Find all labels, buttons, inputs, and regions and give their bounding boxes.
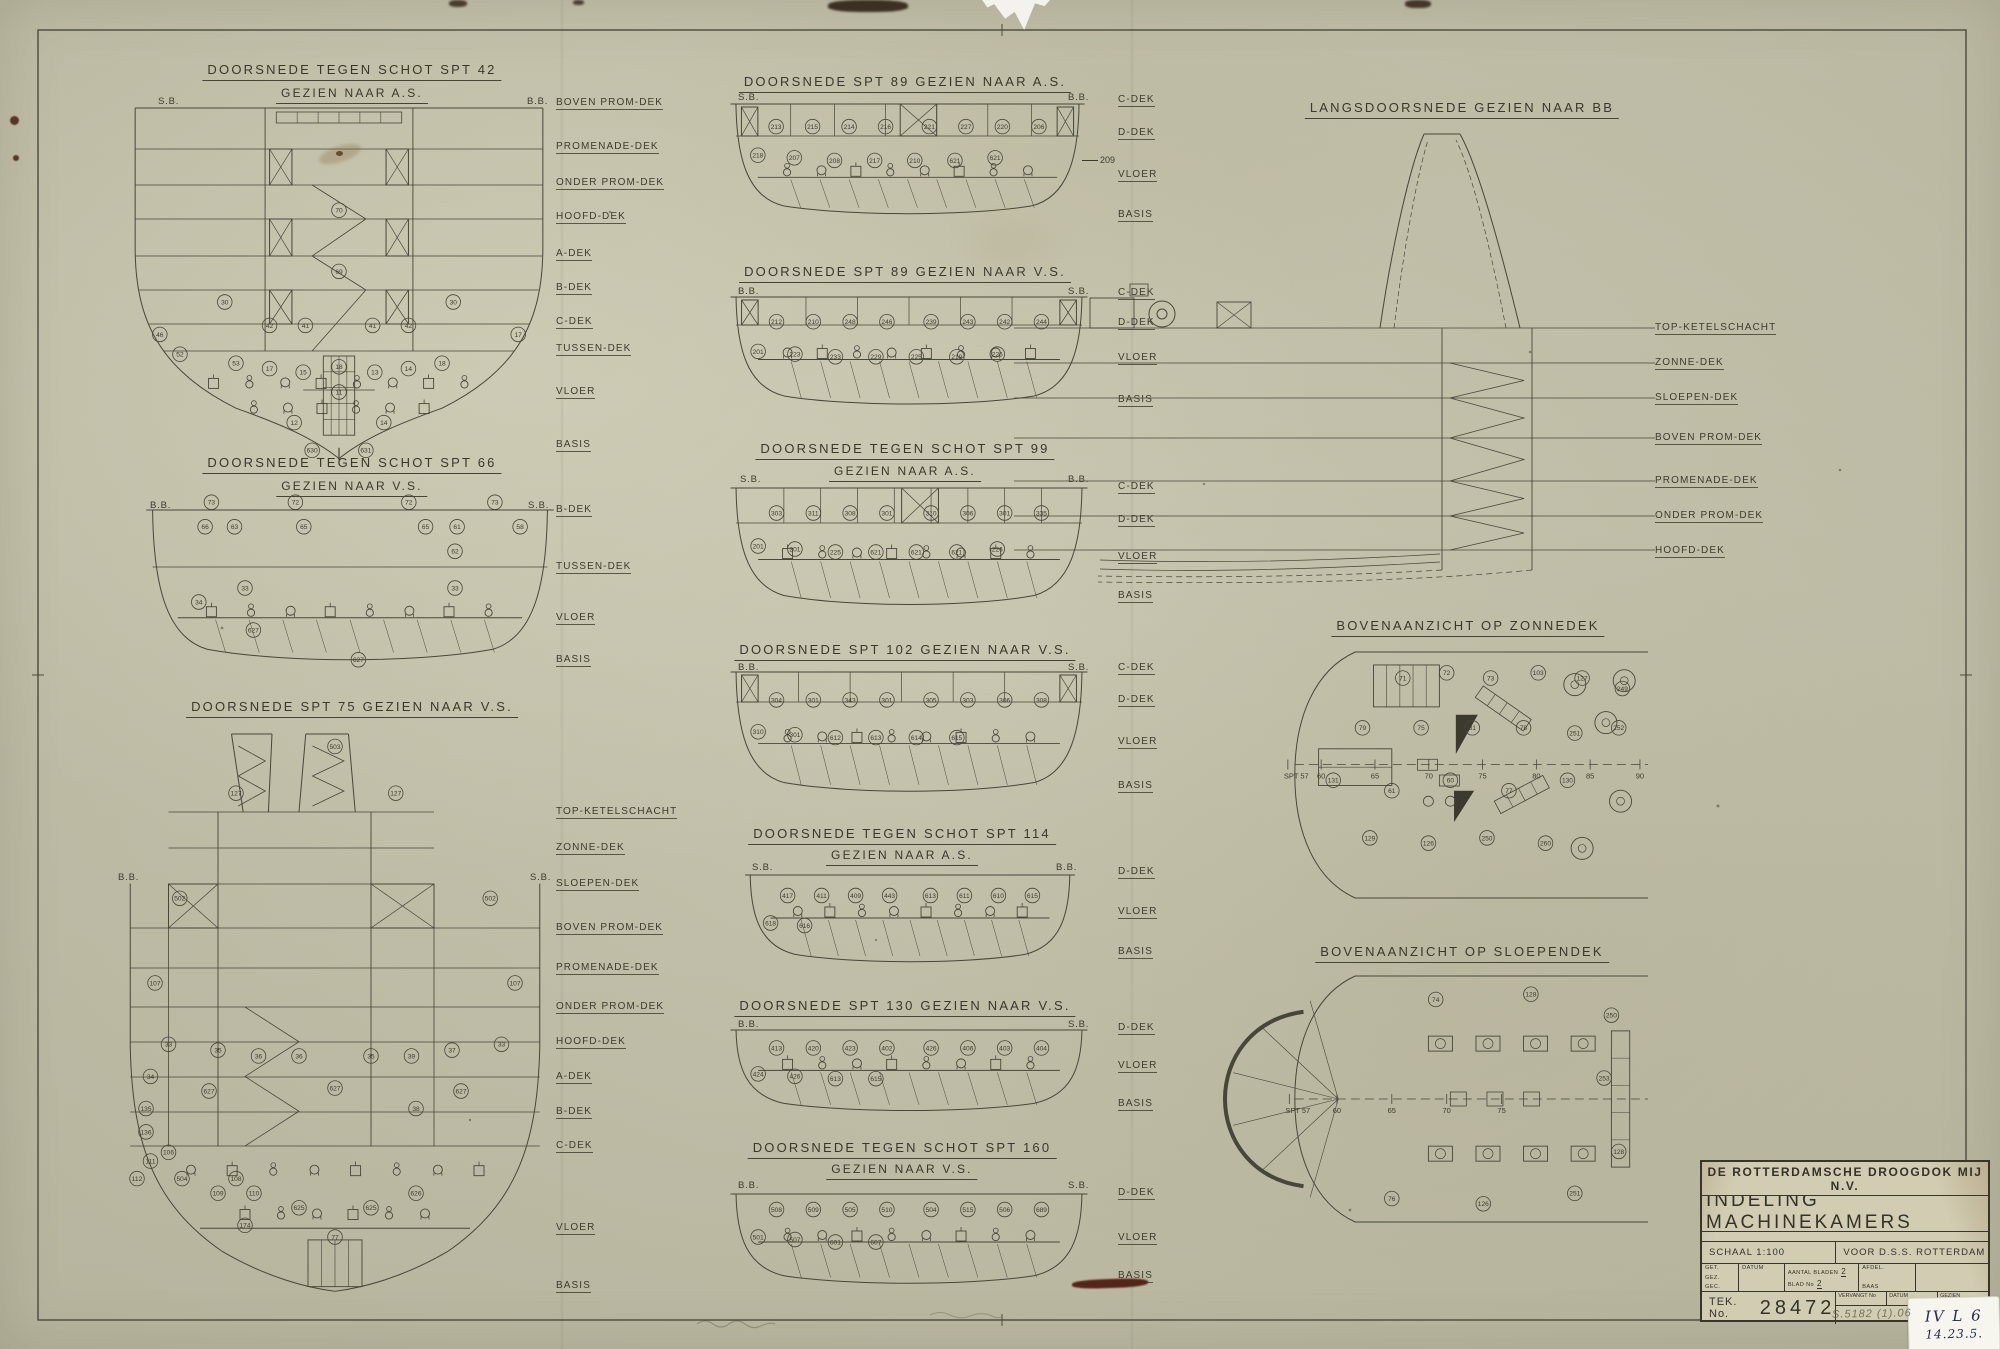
drawing-sheet: DOORSNEDE TEGEN SCHOT SPT 42GEZIEN NAAR … xyxy=(0,0,2000,1349)
svg-text:62: 62 xyxy=(451,549,459,556)
callout: 233 xyxy=(828,350,843,365)
svg-text:30: 30 xyxy=(450,299,458,306)
callout: 66 xyxy=(198,519,213,534)
svg-text:201: 201 xyxy=(753,543,764,550)
callout: 106 xyxy=(161,1145,176,1160)
svg-text:61: 61 xyxy=(1388,788,1396,795)
svg-text:613: 613 xyxy=(870,735,881,742)
callout: 212 xyxy=(769,314,784,329)
svg-text:250: 250 xyxy=(1481,835,1492,842)
empty-cell xyxy=(1916,1264,1988,1291)
svg-text:107: 107 xyxy=(509,980,520,987)
callout: 417 xyxy=(780,888,795,903)
svg-text:127: 127 xyxy=(1577,675,1588,682)
callout: 504 xyxy=(175,1171,190,1186)
callout: 404 xyxy=(1034,1041,1049,1056)
svg-text:611: 611 xyxy=(959,893,970,900)
svg-text:38: 38 xyxy=(412,1106,420,1113)
section-spt130-deck-label: D-DEK xyxy=(1118,1022,1155,1035)
svg-text:404: 404 xyxy=(1036,1045,1047,1052)
frame-number: SPT 57 xyxy=(1284,772,1309,781)
svg-text:413: 413 xyxy=(771,1045,782,1052)
sheets-cell: AANTAL BLADEN2 BLAD No2 xyxy=(1785,1264,1859,1291)
svg-text:65: 65 xyxy=(422,524,430,531)
svg-text:220: 220 xyxy=(997,124,1008,131)
callout: 36 xyxy=(292,1049,307,1064)
callout: 225 xyxy=(828,545,843,560)
callout: 226 xyxy=(990,542,1005,557)
callout: 627 xyxy=(328,1081,343,1096)
callout: 402 xyxy=(880,1041,895,1056)
tek-cell: TEK. No. 28472 xyxy=(1702,1292,1836,1324)
callout: 411 xyxy=(814,888,829,903)
section-spt130-deck-label: BASIS xyxy=(1118,1098,1153,1111)
svg-text:212: 212 xyxy=(771,319,782,326)
callout: 33 xyxy=(448,581,463,596)
langsdoorsnede-title: LANGSDOORSNEDE GEZIEN NAAR BB xyxy=(1305,100,1619,119)
client-label: VOOR D.S.S. ROTTERDAM xyxy=(1836,1242,1988,1263)
svg-text:128: 128 xyxy=(1525,992,1536,999)
svg-text:210: 210 xyxy=(808,319,819,326)
svg-text:60: 60 xyxy=(1447,778,1455,785)
svg-text:420: 420 xyxy=(808,1045,819,1052)
callout: 301 xyxy=(880,693,895,708)
svg-text:208: 208 xyxy=(829,158,840,165)
field-afdel: AFDEL. xyxy=(1862,1265,1912,1271)
section-spt130-title: DOORSNEDE SPT 130 GEZIEN NAAR V.S. xyxy=(734,998,1075,1017)
svg-text:616: 616 xyxy=(799,923,810,930)
callout: 243 xyxy=(961,314,976,329)
svg-text:39: 39 xyxy=(408,1053,416,1060)
aantal-value: 2 xyxy=(1841,1267,1846,1277)
svg-text:627: 627 xyxy=(353,657,364,664)
svg-text:128: 128 xyxy=(1613,1149,1624,1156)
callout: 409 xyxy=(848,888,863,903)
svg-text:301: 301 xyxy=(789,732,800,739)
svg-text:126: 126 xyxy=(1478,1201,1489,1208)
callout: 301 xyxy=(880,506,895,521)
svg-text:65: 65 xyxy=(300,524,308,531)
svg-text:626: 626 xyxy=(410,1191,421,1198)
langsdoorsnede-deck-label: SLOEPEN-DEK xyxy=(1655,392,1738,405)
svg-text:443: 443 xyxy=(884,893,895,900)
section-spt114-deck-label: BASIS xyxy=(1118,946,1153,959)
callout: 72 xyxy=(1439,666,1454,681)
section-spt66-deck-label: VLOER xyxy=(556,612,595,625)
svg-text:612: 612 xyxy=(830,735,841,742)
svg-text:61: 61 xyxy=(453,524,461,531)
frame-number: 75 xyxy=(1478,772,1486,781)
section-spt102-title: DOORSNEDE SPT 102 GEZIEN NAAR V.S. xyxy=(734,642,1075,661)
svg-text:73: 73 xyxy=(208,500,216,507)
callout: 76 xyxy=(1385,1191,1400,1206)
svg-text:36: 36 xyxy=(255,1053,263,1060)
svg-text:301: 301 xyxy=(881,510,892,517)
svg-text:130: 130 xyxy=(1562,778,1573,785)
tek-number: 28472 xyxy=(1760,1297,1836,1320)
callout: 304 xyxy=(769,693,784,708)
section-spt160-title: DOORSNEDE TEGEN SCHOT SPT 160 xyxy=(748,1140,1057,1159)
callout: 210 xyxy=(908,153,923,168)
svg-text:35: 35 xyxy=(367,1053,375,1060)
callout: 30 xyxy=(446,295,461,310)
callout: 506 xyxy=(997,1202,1012,1217)
svg-text:621: 621 xyxy=(911,549,922,556)
rust-spot xyxy=(10,116,19,125)
callout: 303 xyxy=(961,693,976,708)
callout: 509 xyxy=(806,1202,821,1217)
callout: 65 xyxy=(418,519,433,534)
section-spt66-deck-label: BASIS xyxy=(556,654,591,667)
section-spt42-deck-label: PROMENADE-DEK xyxy=(556,141,659,154)
callout: 15 xyxy=(296,365,311,380)
callout: 208 xyxy=(827,153,842,168)
callout: 39 xyxy=(404,1049,419,1064)
callout: 248 xyxy=(843,314,858,329)
svg-text:621: 621 xyxy=(990,155,1001,162)
svg-text:35: 35 xyxy=(214,1048,222,1055)
section-spt75-deck-label: ZONNE-DEK xyxy=(556,842,625,855)
svg-text:106: 106 xyxy=(163,1150,174,1157)
section-spt99-title: DOORSNEDE TEGEN SCHOT SPT 99 xyxy=(755,441,1054,460)
svg-text:77: 77 xyxy=(1505,788,1513,795)
callout: 627 xyxy=(202,1084,217,1099)
callout: 242 xyxy=(997,314,1012,329)
svg-text:77: 77 xyxy=(331,1234,339,1241)
callout: 503 xyxy=(328,739,343,754)
svg-text:215: 215 xyxy=(807,124,818,131)
callout: 72 xyxy=(288,495,303,510)
callout: 426 xyxy=(788,1069,803,1084)
callout: 74 xyxy=(1428,992,1443,1007)
field-blad-no: BLAD No xyxy=(1788,1282,1814,1288)
callout: 301 xyxy=(806,693,821,708)
svg-text:343: 343 xyxy=(845,697,856,704)
svg-text:627: 627 xyxy=(203,1088,214,1095)
ink-smudge xyxy=(573,0,584,5)
section-spt42-deck-label: HOOFD-DEK xyxy=(556,211,626,224)
callout: 252 xyxy=(1611,721,1626,736)
svg-text:223: 223 xyxy=(789,352,800,359)
svg-text:216: 216 xyxy=(880,124,891,131)
callout: 627 xyxy=(246,623,261,638)
callout: 246 xyxy=(880,314,895,329)
svg-text:58: 58 xyxy=(516,524,524,531)
callout: 621 xyxy=(948,153,963,168)
callout: 129 xyxy=(1363,831,1378,846)
callout: 308 xyxy=(843,506,858,521)
callout: 627 xyxy=(351,652,366,667)
langsdoorsnede-drawing xyxy=(1012,126,1657,574)
section-spt75-deck-label: PROMENADE-DEK xyxy=(556,962,659,975)
section-spt42-title: DOORSNEDE TEGEN SCHOT SPT 42 xyxy=(202,62,501,81)
svg-text:37: 37 xyxy=(448,1048,456,1055)
callout: 18 xyxy=(435,356,450,371)
callout: 41 xyxy=(298,318,313,333)
svg-text:11: 11 xyxy=(336,389,343,396)
svg-text:251: 251 xyxy=(1569,730,1580,737)
callout: 308 xyxy=(1034,693,1049,708)
svg-text:505: 505 xyxy=(845,1207,856,1214)
title-block-spacer xyxy=(1702,1232,1988,1242)
svg-text:504: 504 xyxy=(176,1176,187,1183)
callout: 73 xyxy=(204,495,219,510)
callout: 627 xyxy=(454,1084,469,1099)
callout: 63 xyxy=(227,519,242,534)
svg-text:502: 502 xyxy=(174,896,185,903)
svg-text:201: 201 xyxy=(753,349,764,356)
callout: 215 xyxy=(805,119,820,134)
bovenaanzicht-sloependek-title: BOVENAANZICHT OP SLOEPENDEK xyxy=(1315,944,1609,963)
callout: 615 xyxy=(869,1071,884,1086)
section-spt102-drawing: 3043013433013053033063083103016126136146… xyxy=(725,668,1093,813)
callout: 34 xyxy=(192,595,207,610)
callout: 621 xyxy=(988,151,1003,166)
section-spt75-deck-label: BASIS xyxy=(556,1280,591,1293)
section-spt114-deck-label: VLOER xyxy=(1118,906,1157,919)
ink-smudge xyxy=(449,0,467,7)
svg-text:502: 502 xyxy=(485,896,496,903)
svg-text:33: 33 xyxy=(241,585,249,592)
section-spt89-as-deck-label: C-DEK xyxy=(1118,94,1155,107)
svg-text:627: 627 xyxy=(329,1085,340,1092)
svg-text:306: 306 xyxy=(962,510,973,517)
svg-text:301: 301 xyxy=(999,510,1010,517)
frame-number: 70 xyxy=(1443,1106,1451,1115)
section-spt75-deck-label: SLOEPEN-DEK xyxy=(556,878,639,891)
callout: 420 xyxy=(806,1041,821,1056)
callout: 505 xyxy=(843,1202,858,1217)
callout: 65 xyxy=(297,519,312,534)
svg-text:14: 14 xyxy=(380,420,388,427)
section-spt75-deck-label: C-DEK xyxy=(556,1140,593,1153)
callout: 249 xyxy=(1615,681,1630,696)
svg-text:630: 630 xyxy=(307,448,318,455)
langsdoorsnede-deck-label: TOP-KETELSCHACHT xyxy=(1655,322,1776,335)
section-spt114-subtitle: GEZIEN NAAR A.S. xyxy=(826,848,978,866)
svg-text:79: 79 xyxy=(1359,725,1367,732)
svg-text:426: 426 xyxy=(926,1045,937,1052)
svg-text:618: 618 xyxy=(765,920,776,927)
svg-text:46: 46 xyxy=(156,332,164,339)
callout: 621 xyxy=(909,545,924,560)
svg-text:613: 613 xyxy=(925,893,936,900)
callout: 219 xyxy=(950,350,965,365)
svg-text:214: 214 xyxy=(844,124,855,131)
svg-text:76: 76 xyxy=(1388,1196,1396,1203)
section-spt89-as-title: DOORSNEDE SPT 89 GEZIEN NAAR A.S. xyxy=(739,74,1071,93)
section-spt102-deck-label: VLOER xyxy=(1118,736,1157,749)
svg-text:625: 625 xyxy=(293,1205,304,1212)
callout: 616 xyxy=(797,918,812,933)
svg-text:75: 75 xyxy=(1417,725,1425,732)
svg-text:103: 103 xyxy=(1533,670,1544,677)
callout: 128 xyxy=(1611,1144,1626,1159)
sticker-number: 14.23.5. xyxy=(1925,1326,1983,1341)
callout: 303 xyxy=(769,506,784,521)
svg-text:504: 504 xyxy=(926,1207,937,1214)
callout: 508 xyxy=(769,1202,784,1217)
svg-text:227: 227 xyxy=(960,124,971,131)
section-spt102-deck-label: D-DEK xyxy=(1118,694,1155,707)
callout: 614 xyxy=(909,730,924,745)
callout: 601 xyxy=(828,1235,843,1250)
svg-text:107: 107 xyxy=(149,980,160,987)
callout: 17 xyxy=(511,327,526,342)
frame-number: 70 xyxy=(1425,772,1433,781)
section-spt114-title: DOORSNEDE TEGEN SCHOT SPT 114 xyxy=(748,826,1056,845)
svg-text:406: 406 xyxy=(962,1045,973,1052)
callout: 625 xyxy=(364,1201,379,1216)
callout: 103 xyxy=(1531,666,1546,681)
callout: 126 xyxy=(1421,836,1436,851)
svg-text:225: 225 xyxy=(911,354,922,361)
callout: 108 xyxy=(229,1171,244,1186)
callout: 33 xyxy=(494,1037,509,1052)
drawing-title-row: INDELING MACHINEKAMERS xyxy=(1702,1196,1988,1232)
svg-text:252: 252 xyxy=(1613,725,1624,732)
callout: 136 xyxy=(139,1125,154,1140)
svg-text:14: 14 xyxy=(405,366,413,373)
svg-text:424: 424 xyxy=(753,1071,764,1078)
callout: 504 xyxy=(924,1202,939,1217)
callout: 126 xyxy=(1476,1197,1491,1212)
svg-text:33: 33 xyxy=(165,1042,173,1049)
svg-text:109: 109 xyxy=(212,1191,223,1198)
svg-text:74: 74 xyxy=(1432,997,1440,1004)
section-spt160-deck-label: D-DEK xyxy=(1118,1187,1155,1200)
bovenaanzicht-zonnedek-drawing: SPT 576065707580859071727310312724979758… xyxy=(1282,644,1648,906)
svg-text:305: 305 xyxy=(926,697,937,704)
svg-text:304: 304 xyxy=(771,697,782,704)
section-spt114-drawing: 417411409443613611610615618616 xyxy=(740,868,1080,993)
callout: 37 xyxy=(445,1043,460,1058)
svg-text:219: 219 xyxy=(951,354,962,361)
section-spt75-deck-label: BOVEN PROM-DEK xyxy=(556,922,663,935)
svg-text:229: 229 xyxy=(870,354,881,361)
svg-text:402: 402 xyxy=(881,1045,892,1052)
callout: 38 xyxy=(409,1101,424,1116)
frame-number: 85 xyxy=(1586,772,1594,781)
callout: 239 xyxy=(924,314,939,329)
callout: 424 xyxy=(751,1067,766,1082)
drawing-title: INDELING MACHINEKAMERS xyxy=(1702,1196,1988,1232)
svg-text:72: 72 xyxy=(405,500,413,507)
tek-label: TEK. No. xyxy=(1709,1296,1752,1320)
section-spt42-subtitle: GEZIEN NAAR A.S. xyxy=(276,86,428,104)
archive-sticker: IV L 6 14.23.5. xyxy=(1907,1296,2000,1349)
field-baas: BAAS xyxy=(1862,1284,1912,1290)
callout: 107 xyxy=(148,976,163,991)
callout: 201 xyxy=(788,542,803,557)
callout: 71 xyxy=(1395,671,1410,686)
svg-text:201: 201 xyxy=(789,546,800,553)
callout: 613 xyxy=(828,1071,843,1086)
fields-row: GET. GEZ. GEC. DATUM AANTAL BLADEN2 BLAD… xyxy=(1702,1264,1988,1292)
svg-text:423: 423 xyxy=(845,1045,856,1052)
section-spt66-title: DOORSNEDE TEGEN SCHOT SPT 66 xyxy=(202,455,501,474)
callout: 213 xyxy=(769,119,784,134)
svg-text:78: 78 xyxy=(1520,725,1528,732)
callout: 403 xyxy=(997,1041,1012,1056)
callout: 251 xyxy=(1568,1186,1583,1201)
svg-text:301: 301 xyxy=(808,697,819,704)
svg-text:248: 248 xyxy=(845,319,856,326)
callout: 443 xyxy=(882,888,897,903)
callout: 689 xyxy=(1034,1202,1049,1217)
section-spt130-drawing: 413420423402426406403404424426613615 xyxy=(725,1022,1093,1140)
svg-text:621: 621 xyxy=(951,549,962,556)
callout: 112 xyxy=(130,1171,145,1186)
callout: 515 xyxy=(961,1202,976,1217)
ink-smudge xyxy=(828,0,908,12)
callout: 34 xyxy=(143,1069,158,1084)
callout: 135 xyxy=(139,1101,154,1116)
svg-text:615: 615 xyxy=(870,1076,881,1083)
callout: 73 xyxy=(1483,671,1498,686)
svg-text:81: 81 xyxy=(1469,725,1477,732)
callout: 613 xyxy=(923,888,938,903)
svg-text:607: 607 xyxy=(870,1239,881,1246)
callout: 127 xyxy=(229,786,244,801)
svg-text:242: 242 xyxy=(999,319,1010,326)
svg-text:615: 615 xyxy=(951,735,962,742)
callout: 46 xyxy=(153,327,168,342)
callout: 260 xyxy=(1538,836,1553,851)
callout: 611 xyxy=(957,888,972,903)
svg-text:627: 627 xyxy=(248,627,259,634)
svg-text:127: 127 xyxy=(230,791,241,798)
field-get: GET. xyxy=(1705,1265,1735,1271)
callout: 510 xyxy=(880,1202,895,1217)
svg-text:515: 515 xyxy=(962,1207,973,1214)
callout: 207 xyxy=(787,151,802,166)
callout: 626 xyxy=(409,1186,424,1201)
section-spt66-deck-label: TUSSEN-DEK xyxy=(556,561,631,574)
svg-text:174: 174 xyxy=(239,1223,250,1230)
svg-text:42: 42 xyxy=(405,323,413,330)
svg-text:501: 501 xyxy=(753,1234,764,1241)
svg-text:33: 33 xyxy=(498,1042,506,1049)
frame-number: 75 xyxy=(1497,1106,1505,1115)
scale-row: SCHAAL 1:100 VOOR D.S.S. ROTTERDAM xyxy=(1702,1242,1988,1264)
svg-text:63: 63 xyxy=(231,524,239,531)
svg-text:409: 409 xyxy=(850,893,861,900)
svg-text:70: 70 xyxy=(335,208,343,215)
callout: 423 xyxy=(843,1041,858,1056)
section-spt102-deck-label: C-DEK xyxy=(1118,662,1155,675)
svg-text:417: 417 xyxy=(782,893,793,900)
svg-text:36: 36 xyxy=(295,1053,303,1060)
callout: 615 xyxy=(1025,888,1040,903)
callout: 618 xyxy=(763,916,778,931)
callout: 127 xyxy=(1575,671,1590,686)
scanned-drawing-page: DOORSNEDE TEGEN SCHOT SPT 42GEZIEN NAAR … xyxy=(0,0,2000,1349)
callout: 251 xyxy=(1568,726,1583,741)
section-spt75-deck-label: VLOER xyxy=(556,1222,595,1235)
callout: 70 xyxy=(332,203,347,218)
callout: 75 xyxy=(1414,721,1429,736)
section-spt75-drawing: 5031271275025021071073335363635393733346… xyxy=(110,726,560,1310)
svg-text:411: 411 xyxy=(816,893,827,900)
rust-spot xyxy=(13,155,19,161)
svg-text:510: 510 xyxy=(881,1207,892,1214)
field-gec: GEC. xyxy=(1705,1284,1735,1290)
svg-text:18: 18 xyxy=(335,364,343,371)
callout: 502 xyxy=(483,891,498,906)
callout: 17 xyxy=(262,361,277,376)
svg-text:243: 243 xyxy=(962,319,973,326)
